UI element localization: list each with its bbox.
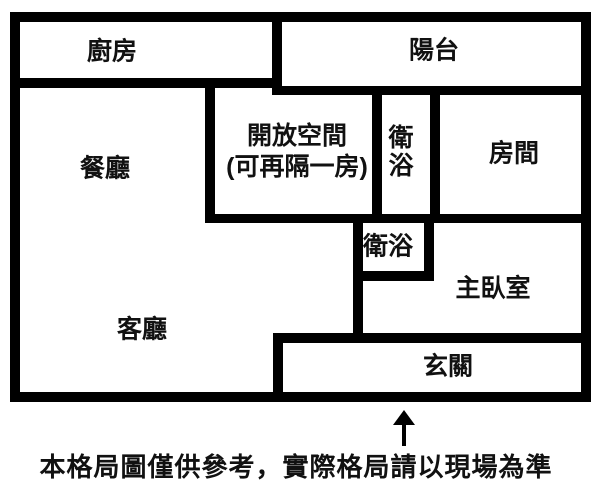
wall-kitchen-bottom	[10, 78, 282, 88]
room-label-bedroom: 房間	[489, 140, 539, 168]
room-label-kitchen: 廚房	[87, 38, 137, 66]
entrance-arrow-icon	[393, 410, 415, 447]
wall-kitchen-balcony-divider	[272, 12, 282, 95]
room-label-bathroom-top: 衛浴	[388, 124, 415, 180]
room-label-dining: 餐廳	[80, 155, 130, 183]
wall-entry-left	[273, 333, 283, 402]
room-label-master-bedroom: 主臥室	[455, 275, 530, 303]
room-label-open-space-line1: 開放空間	[226, 121, 368, 152]
wall-middle-horizontal	[205, 214, 591, 223]
wall-outer-right	[581, 12, 591, 402]
wall-outer-bottom	[10, 392, 591, 402]
wall-bathroom-top-right	[430, 86, 440, 223]
wall-open-space-left	[205, 78, 215, 223]
room-label-living: 客廳	[117, 316, 167, 344]
room-label-bathroom-mid: 衛浴	[363, 233, 413, 261]
wall-bathroom-mid-bottom	[353, 271, 434, 281]
room-label-balcony: 陽台	[409, 37, 459, 65]
wall-bathroom-top-left	[372, 86, 382, 223]
floor-plan: 廚房 陽台 餐廳 開放空間 (可再隔一房) 衛浴 房間 衛浴 主臥室 客廳 玄關…	[0, 0, 612, 480]
entrance-arrow-stem	[402, 423, 406, 446]
wall-entry-top	[273, 333, 591, 343]
room-label-open-space: 開放空間 (可再隔一房)	[226, 121, 368, 183]
disclaimer-text: 本格局圖僅供參考，實際格局請以現場為準	[0, 447, 592, 480]
wall-outer-top	[10, 12, 591, 22]
room-label-entry: 玄關	[423, 353, 473, 381]
wall-outer-left	[10, 12, 20, 402]
room-label-open-space-line2: (可再隔一房)	[226, 152, 368, 183]
room-kitchen	[20, 22, 272, 78]
room-living	[20, 223, 273, 392]
